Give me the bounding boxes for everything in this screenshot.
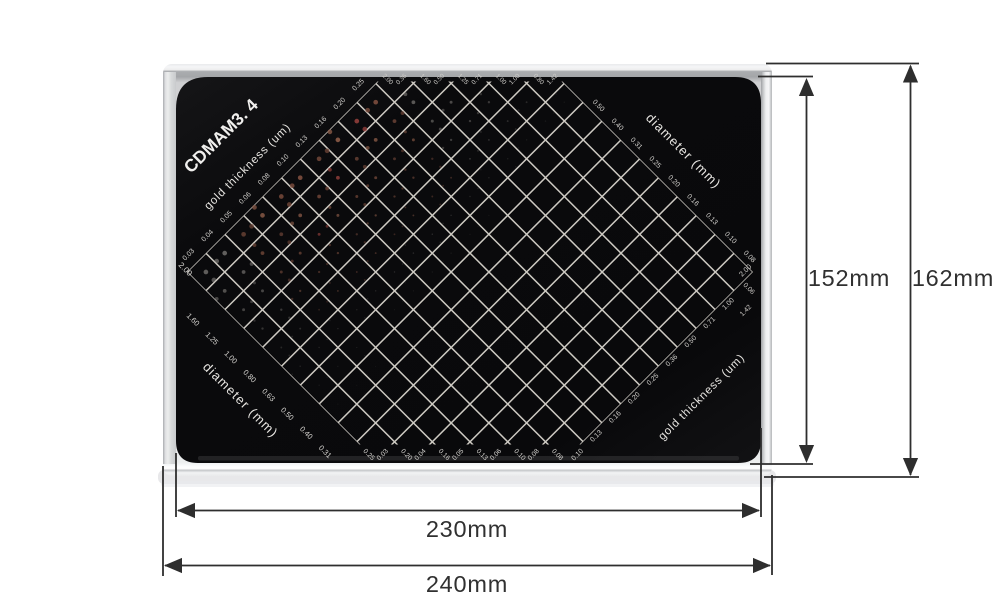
svg-text:230mm: 230mm xyxy=(426,516,508,542)
svg-text:240mm: 240mm xyxy=(426,571,508,595)
svg-text:152mm: 152mm xyxy=(808,265,890,291)
svg-text:162mm: 162mm xyxy=(912,265,994,291)
